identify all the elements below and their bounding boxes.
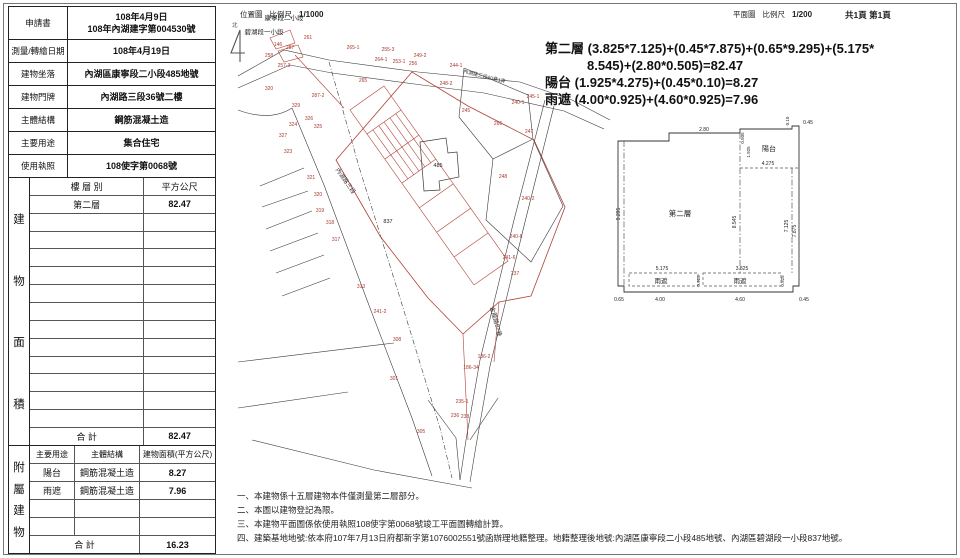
parcel-number: 301 bbox=[390, 376, 399, 382]
annex-section: 附屬建物 主要用途主體結構建物面積(平方公尺)陽台鋼筋混凝土造8.27雨遮鋼筋混… bbox=[9, 446, 215, 553]
annex-col: 建物面積(平方公尺) bbox=[140, 446, 215, 463]
total-label: 合 計 bbox=[30, 536, 140, 553]
parcel-number: 248-2 bbox=[440, 81, 453, 87]
total-label: 合 計 bbox=[30, 428, 144, 445]
annex-empty-row bbox=[30, 500, 215, 518]
floor-cell bbox=[30, 339, 144, 356]
plan-dimension-label: 0.925 bbox=[696, 275, 701, 287]
area-cell bbox=[144, 374, 215, 391]
info-value: 集合住宅 bbox=[68, 132, 215, 154]
parcel-number: 186-34 bbox=[463, 365, 479, 371]
parcel-number: 240-6 bbox=[510, 234, 523, 240]
 bbox=[140, 500, 215, 517]
area-empty-row bbox=[30, 339, 215, 357]
info-row: 測量/轉繪日期108年4月19日 bbox=[9, 40, 215, 63]
parcel-number: 837 bbox=[383, 219, 392, 225]
parcel-number: 146 bbox=[274, 42, 283, 48]
formula-line: 雨遮 (4.00*0.925)+(4.60*0.925)=7.96 bbox=[545, 91, 957, 108]
plan-dimension-label: 7.875 bbox=[792, 225, 798, 238]
area-header: 樓 層 別平方公尺 bbox=[30, 178, 215, 196]
area-cell bbox=[144, 303, 215, 320]
parcel-number: 317 bbox=[332, 237, 341, 243]
floor-plan-centerlines bbox=[624, 133, 792, 286]
parcel-number: 325 bbox=[314, 124, 323, 130]
side-char: 物 bbox=[13, 524, 25, 540]
 bbox=[140, 518, 215, 535]
area-empty-row bbox=[30, 410, 215, 428]
plan-dimension-label: 0.45 bbox=[803, 120, 813, 126]
info-label: 主體結構 bbox=[9, 109, 68, 131]
annex-row: 雨遮鋼筋混凝土造7.96 bbox=[30, 482, 215, 500]
parcel-number: 258 bbox=[265, 53, 274, 59]
parcel-number: 235-1 bbox=[456, 399, 469, 405]
parcel-number: 324 bbox=[289, 122, 298, 128]
plan-dimension-label: 7.125 bbox=[784, 220, 790, 233]
floor-cell bbox=[30, 410, 144, 427]
parcel-number: 236 bbox=[451, 413, 460, 419]
plan-dimension-label: 0.505 bbox=[740, 132, 745, 144]
parcel-number: 318 bbox=[326, 220, 335, 226]
plan-dimension-label: 4.00 bbox=[655, 297, 665, 303]
col-floor: 樓 層 別 bbox=[30, 178, 144, 195]
floor-plan-dashed bbox=[629, 168, 799, 286]
survey-sheet: 申請書108年4月9日 108年內湖建字第004530號測量/轉繪日期108年4… bbox=[0, 0, 960, 558]
parcel-number: 240-2 bbox=[522, 196, 535, 202]
floor-plan: 2.800.5051.9250.100.45陽台4.275第二層9.2958.5… bbox=[612, 110, 872, 315]
area-cell bbox=[144, 267, 215, 284]
area-total-row: 合 計82.47 bbox=[30, 428, 215, 445]
use-cell: 陽台 bbox=[30, 464, 75, 481]
section-label: 康寧段二小段 bbox=[265, 13, 305, 22]
building-area-side-label: 建物面積 bbox=[9, 178, 30, 445]
parcel-number: 245 bbox=[462, 108, 471, 114]
parcel-number: 313 bbox=[357, 284, 366, 290]
info-label: 建物坐落 bbox=[9, 63, 68, 85]
plan-dimension-label: 0.45 bbox=[799, 297, 809, 303]
total-value: 16.23 bbox=[140, 536, 215, 553]
info-row: 主體結構鋼筋混凝土造 bbox=[9, 109, 215, 132]
parcel-number: 257-3 bbox=[278, 63, 291, 69]
parcel-number: 240-1 bbox=[512, 100, 525, 106]
parcel-number: 287 bbox=[286, 45, 295, 51]
floor-cell bbox=[30, 374, 144, 391]
floor-cell bbox=[30, 321, 144, 338]
info-value: 108使字第0068號 bbox=[68, 155, 215, 177]
plan-dimension-label: 0.925 bbox=[780, 275, 785, 287]
info-value: 內湖路三段36號二樓 bbox=[68, 86, 215, 108]
floor-cell bbox=[30, 232, 144, 249]
parcel-number: 253-1 bbox=[393, 59, 406, 65]
info-table: 申請書108年4月9日 108年內湖建字第004530號測量/轉繪日期108年4… bbox=[9, 7, 215, 178]
parcel-number: 265-1 bbox=[347, 45, 360, 51]
plan-dimension-label: 9.295 bbox=[616, 208, 622, 221]
 bbox=[75, 518, 140, 535]
parcel-number: 329 bbox=[292, 103, 301, 109]
plan-dimension-label: 0.10 bbox=[785, 116, 790, 125]
annex-col: 主體結構 bbox=[75, 446, 140, 463]
floor-cell: 第二層 bbox=[30, 196, 144, 213]
info-value: 鋼筋混凝土造 bbox=[68, 109, 215, 131]
parcel-number: 265 bbox=[359, 78, 368, 84]
floor-cell bbox=[30, 357, 144, 374]
parcel-number: 327 bbox=[279, 133, 288, 139]
info-label: 主要用途 bbox=[9, 132, 68, 154]
area-cell bbox=[144, 285, 215, 302]
area-empty-row bbox=[30, 285, 215, 303]
plan-dimension-label: 雨遮 bbox=[734, 276, 748, 285]
area-cell bbox=[144, 232, 215, 249]
col-area: 平方公尺 bbox=[144, 178, 215, 195]
note-line: 三、本建物平面圖係依使用執照108使字第0068號竣工平面圖轉繪計算。 bbox=[237, 517, 953, 531]
parcel-number: 261 bbox=[304, 35, 313, 41]
floor-cell bbox=[30, 392, 144, 409]
plan-dimension-label: 3.825 bbox=[736, 266, 749, 272]
parcel-number: 266 bbox=[494, 121, 503, 127]
area-empty-row bbox=[30, 214, 215, 232]
formula-line: 陽台 (1.925*4.275)+(0.45*0.10)=8.27 bbox=[545, 74, 957, 91]
road-label: 內湖路三段60巷1弄 bbox=[462, 68, 506, 85]
annex-side-label: 附屬建物 bbox=[9, 446, 30, 553]
parcel-number: 308 bbox=[393, 337, 402, 343]
parcel-number: 264-1 bbox=[375, 57, 388, 63]
plan-dimension-label: 0.65 bbox=[614, 297, 624, 303]
parcel-number: 287-2 bbox=[312, 93, 325, 99]
area-empty-row bbox=[30, 374, 215, 392]
parcel-number: 238 bbox=[461, 414, 470, 420]
plan-map-header: 平面圖 比例尺 1/200 bbox=[733, 9, 812, 20]
survey-notes: 一、本建物係十五層建物本件僅測量第二層部分。二、本圖以建物登記為限。三、本建物平… bbox=[237, 489, 953, 545]
parcel-number: 326 bbox=[305, 116, 314, 122]
parcel-number: 186-2 bbox=[478, 354, 491, 360]
note-line: 一、本建物係十五層建物本件僅測量第二層部分。 bbox=[237, 489, 953, 503]
area-cell bbox=[144, 410, 215, 427]
area-empty-row bbox=[30, 249, 215, 267]
structure-cell: 鋼筋混凝土造 bbox=[75, 464, 140, 481]
area-cell: 82.47 bbox=[144, 196, 215, 213]
plan-dimension-label: 4.275 bbox=[762, 161, 775, 167]
info-row: 使用執照108使字第0068號 bbox=[9, 155, 215, 178]
area-cell bbox=[144, 214, 215, 231]
info-value: 108年4月19日 bbox=[68, 40, 215, 62]
note-line: 二、本圖以建物登記為限。 bbox=[237, 503, 953, 517]
annex-table: 主要用途主體結構建物面積(平方公尺)陽台鋼筋混凝土造8.27雨遮鋼筋混凝土造7.… bbox=[30, 446, 215, 553]
parcel-number: 319 bbox=[316, 208, 325, 214]
plan-dimension-label: 第二層 bbox=[669, 208, 692, 218]
side-char: 建 bbox=[13, 211, 25, 227]
area-cell bbox=[144, 392, 215, 409]
info-row: 建物坐落內湖區康寧段二小段485地號 bbox=[9, 63, 215, 86]
parcel-number: 248 bbox=[499, 174, 508, 180]
parcel-number: 237 bbox=[511, 271, 520, 277]
area-cell bbox=[144, 339, 215, 356]
structure-cell: 鋼筋混凝土造 bbox=[75, 482, 140, 499]
plan-dimension-label: 1.925 bbox=[746, 146, 751, 158]
parcel-number: 256 bbox=[409, 61, 418, 67]
parcel-number: 255-3 bbox=[382, 47, 395, 53]
info-label: 使用執照 bbox=[9, 155, 68, 177]
area-cell bbox=[144, 249, 215, 266]
area-empty-row bbox=[30, 303, 215, 321]
floor-cell bbox=[30, 285, 144, 302]
parcel-number: 249-2 bbox=[414, 53, 427, 59]
parcel-number: 305 bbox=[417, 429, 426, 435]
formula-line: 8.545)+(2.80*0.505)=82.47 bbox=[545, 57, 957, 74]
section-label: 碧湖段一小段 bbox=[245, 27, 285, 36]
area-formula: 第二層 (3.825*7.125)+(0.45*7.875)+(0.65*9.2… bbox=[545, 40, 957, 108]
info-row: 申請書108年4月9日 108年內湖建字第004530號 bbox=[9, 7, 215, 40]
plan-scale-value: 1/200 bbox=[792, 10, 812, 19]
info-label: 測量/轉繪日期 bbox=[9, 40, 68, 62]
info-value: 內湖區康寧段二小段485地號 bbox=[68, 63, 215, 85]
area-empty-row bbox=[30, 321, 215, 339]
side-char: 屬 bbox=[13, 481, 25, 497]
 bbox=[30, 500, 75, 517]
floor-cell bbox=[30, 214, 144, 231]
info-label: 建物門牌 bbox=[9, 86, 68, 108]
building-area-section: 建物面積 樓 層 別平方公尺第二層82.47合 計82.47 bbox=[9, 178, 215, 446]
area-empty-row bbox=[30, 232, 215, 250]
area-empty-row bbox=[30, 392, 215, 410]
plan-map-title: 平面圖 bbox=[733, 9, 756, 20]
plan-dimension-label: 陽台 bbox=[762, 144, 776, 153]
parcel-number: 245-1 bbox=[527, 94, 540, 100]
annex-header: 主要用途主體結構建物面積(平方公尺) bbox=[30, 446, 215, 464]
info-label: 申請書 bbox=[9, 7, 68, 39]
info-row: 建物門牌內湖路三段36號二樓 bbox=[9, 86, 215, 109]
parcel-number: 244-1 bbox=[450, 63, 463, 69]
side-char: 面 bbox=[13, 334, 25, 350]
side-char: 積 bbox=[13, 396, 25, 412]
area-empty-row bbox=[30, 357, 215, 375]
parcel-number: 320 bbox=[265, 86, 274, 92]
annex-total-row: 合 計16.23 bbox=[30, 536, 215, 553]
annex-row: 陽台鋼筋混凝土造8.27 bbox=[30, 464, 215, 482]
building-info-panel: 申請書108年4月9日 108年內湖建字第004530號測量/轉繪日期108年4… bbox=[8, 6, 216, 554]
info-row: 主要用途集合住宅 bbox=[9, 132, 215, 155]
area-cell bbox=[144, 321, 215, 338]
side-char: 物 bbox=[13, 273, 25, 289]
side-char: 附 bbox=[13, 459, 25, 475]
 bbox=[30, 518, 75, 535]
building-area-table: 樓 層 別平方公尺第二層82.47合 計82.47 bbox=[30, 178, 215, 445]
area-row: 第二層82.47 bbox=[30, 196, 215, 214]
annex-col: 主要用途 bbox=[30, 446, 75, 463]
annex-empty-row bbox=[30, 518, 215, 536]
formula-line: 第二層 (3.825*7.125)+(0.45*7.875)+(0.65*9.2… bbox=[545, 40, 957, 57]
use-cell: 雨遮 bbox=[30, 482, 75, 499]
parcel-number: 485 bbox=[433, 163, 442, 169]
 bbox=[75, 500, 140, 517]
area-cell bbox=[144, 357, 215, 374]
note-line: 四、建築基地地號:依本府107年7月13日府都新字第1076002551號函辦理… bbox=[237, 531, 953, 545]
road-label: 內湖路三段 bbox=[334, 166, 358, 195]
plan-dimension-label: 8.545 bbox=[732, 216, 738, 229]
page-count: 共1頁 第1頁 bbox=[845, 9, 891, 21]
plan-dimension-label: 雨遮 bbox=[655, 276, 669, 285]
plan-dimension-label: 4.60 bbox=[735, 297, 745, 303]
plan-dimension-label: 5.175 bbox=[656, 266, 669, 272]
parcel-number: 241-6 bbox=[503, 255, 516, 261]
parcel-number: 320 bbox=[314, 192, 323, 198]
road-label: 金龍路87巷 bbox=[488, 306, 504, 338]
area-cell: 8.27 bbox=[140, 464, 215, 481]
floor-cell bbox=[30, 267, 144, 284]
side-char: 建 bbox=[13, 502, 25, 518]
scale-label: 比例尺 bbox=[763, 9, 786, 20]
floor-cell bbox=[30, 303, 144, 320]
parcel-number: 323 bbox=[284, 149, 293, 155]
info-value: 108年4月9日 108年內湖建字第004530號 bbox=[68, 7, 215, 39]
total-value: 82.47 bbox=[144, 428, 215, 445]
parcel-number: 247 bbox=[525, 129, 534, 135]
parcel-number: 321 bbox=[307, 175, 316, 181]
plan-dimension-label: 2.80 bbox=[699, 127, 709, 133]
parcel-number: 241-2 bbox=[374, 309, 387, 315]
area-empty-row bbox=[30, 267, 215, 285]
site-map-black-lines bbox=[238, 50, 610, 488]
area-cell: 7.96 bbox=[140, 482, 215, 499]
floor-cell bbox=[30, 249, 144, 266]
